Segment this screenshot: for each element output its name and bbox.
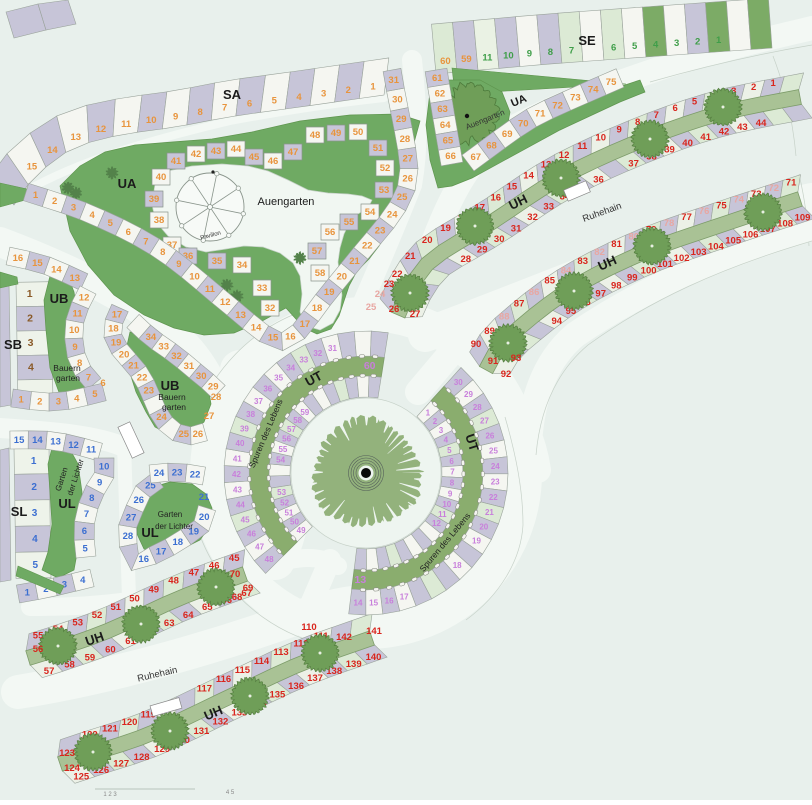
svg-text:20: 20 [422, 235, 433, 246]
svg-text:21: 21 [128, 361, 139, 372]
svg-text:15: 15 [14, 435, 25, 446]
svg-text:SA: SA [223, 87, 242, 102]
svg-text:98: 98 [611, 280, 622, 291]
svg-text:7: 7 [143, 237, 148, 248]
svg-text:47: 47 [288, 147, 299, 158]
svg-text:45: 45 [229, 553, 240, 564]
svg-text:1 2 3: 1 2 3 [103, 792, 117, 798]
svg-text:2: 2 [751, 82, 756, 93]
svg-text:65: 65 [443, 136, 454, 147]
svg-text:4: 4 [32, 534, 38, 545]
svg-text:24: 24 [491, 462, 500, 471]
svg-text:50: 50 [290, 518, 299, 527]
svg-text:37: 37 [254, 397, 263, 406]
svg-text:6: 6 [82, 526, 87, 537]
svg-text:57: 57 [287, 425, 296, 434]
svg-text:11: 11 [482, 52, 493, 63]
svg-text:123: 123 [59, 748, 75, 759]
svg-text:48: 48 [310, 130, 321, 141]
svg-text:2: 2 [346, 85, 351, 96]
svg-text:23: 23 [491, 478, 500, 487]
svg-text:25: 25 [397, 192, 408, 203]
svg-text:59: 59 [461, 54, 472, 65]
svg-text:45: 45 [241, 515, 250, 524]
svg-text:10: 10 [146, 115, 157, 126]
svg-text:25: 25 [179, 429, 190, 440]
svg-text:29: 29 [208, 382, 219, 393]
svg-text:12: 12 [68, 440, 79, 451]
svg-text:64: 64 [440, 120, 451, 131]
svg-text:6: 6 [673, 103, 678, 114]
svg-text:33: 33 [257, 283, 268, 294]
svg-text:75: 75 [716, 200, 727, 211]
svg-text:57: 57 [312, 246, 323, 257]
svg-text:6: 6 [611, 42, 616, 53]
svg-text:23: 23 [144, 386, 155, 397]
svg-text:1: 1 [771, 78, 777, 89]
svg-text:29: 29 [396, 114, 407, 125]
svg-text:26: 26 [193, 429, 204, 440]
svg-text:9: 9 [173, 112, 178, 123]
svg-text:83: 83 [577, 256, 588, 267]
svg-text:97: 97 [595, 288, 606, 299]
svg-text:11: 11 [577, 141, 588, 152]
svg-text:2: 2 [37, 396, 42, 407]
svg-text:34: 34 [146, 332, 157, 343]
svg-text:91: 91 [488, 356, 499, 367]
svg-text:14: 14 [251, 323, 262, 334]
svg-text:23: 23 [375, 225, 386, 236]
svg-text:48: 48 [168, 576, 179, 587]
svg-text:72: 72 [768, 183, 779, 194]
svg-text:4: 4 [74, 394, 80, 405]
svg-text:20: 20 [479, 523, 488, 532]
svg-text:30: 30 [494, 234, 505, 245]
svg-text:28: 28 [211, 392, 222, 403]
svg-text:27: 27 [126, 513, 137, 524]
svg-text:58: 58 [315, 268, 326, 279]
svg-text:24: 24 [154, 468, 165, 479]
svg-text:35: 35 [212, 256, 223, 267]
svg-text:71: 71 [786, 177, 797, 188]
svg-text:29: 29 [477, 245, 488, 256]
svg-text:106: 106 [743, 230, 759, 241]
svg-text:40: 40 [236, 439, 245, 448]
svg-text:3: 3 [674, 38, 679, 49]
svg-text:UB: UB [50, 291, 69, 306]
svg-text:UB: UB [161, 378, 180, 393]
svg-text:30: 30 [196, 371, 207, 382]
svg-text:18: 18 [108, 324, 119, 335]
svg-text:99: 99 [627, 273, 638, 284]
svg-text:14: 14 [51, 265, 62, 276]
svg-text:1: 1 [25, 587, 31, 598]
svg-text:116: 116 [216, 674, 231, 685]
svg-text:16: 16 [491, 192, 502, 203]
svg-text:56: 56 [33, 644, 44, 655]
svg-text:8: 8 [89, 493, 94, 504]
svg-text:5: 5 [82, 543, 88, 554]
svg-text:38: 38 [154, 215, 165, 226]
svg-text:13: 13 [70, 273, 81, 284]
svg-text:10: 10 [595, 133, 606, 144]
svg-text:SB: SB [4, 337, 22, 352]
svg-text:51: 51 [373, 143, 384, 154]
svg-text:14: 14 [47, 145, 58, 156]
svg-text:5: 5 [33, 560, 39, 571]
svg-text:32: 32 [265, 303, 276, 314]
svg-text:45: 45 [249, 152, 260, 163]
svg-text:19: 19 [472, 537, 481, 546]
svg-text:81: 81 [611, 239, 622, 250]
svg-text:11: 11 [86, 445, 97, 456]
svg-text:19: 19 [111, 337, 122, 348]
svg-text:43: 43 [211, 146, 222, 157]
svg-text:15: 15 [268, 333, 279, 344]
svg-text:6: 6 [100, 378, 105, 389]
svg-text:20: 20 [119, 350, 130, 361]
svg-text:1: 1 [27, 288, 33, 300]
svg-text:24: 24 [375, 289, 386, 300]
svg-text:15: 15 [507, 181, 518, 192]
svg-text:28: 28 [400, 134, 411, 145]
svg-text:10: 10 [69, 325, 80, 336]
svg-text:102: 102 [674, 253, 690, 264]
svg-text:48: 48 [265, 555, 274, 564]
svg-text:142: 142 [336, 632, 352, 643]
svg-text:11: 11 [438, 510, 447, 519]
svg-text:60: 60 [105, 645, 116, 656]
svg-text:27: 27 [480, 417, 489, 426]
svg-text:140: 140 [366, 652, 382, 663]
svg-text:62: 62 [435, 89, 446, 100]
svg-text:2: 2 [433, 417, 438, 426]
svg-text:39: 39 [149, 194, 160, 205]
svg-text:10: 10 [442, 500, 451, 509]
svg-text:109: 109 [795, 213, 811, 224]
svg-text:139: 139 [346, 659, 362, 670]
svg-text:58: 58 [293, 416, 302, 425]
svg-text:93: 93 [511, 353, 522, 364]
svg-text:73: 73 [570, 92, 581, 103]
svg-text:9: 9 [616, 125, 621, 136]
svg-text:16: 16 [13, 253, 24, 264]
svg-text:13: 13 [355, 574, 367, 586]
svg-text:34: 34 [237, 260, 248, 271]
svg-text:18: 18 [312, 303, 323, 314]
svg-text:47: 47 [189, 568, 200, 579]
svg-text:108: 108 [777, 218, 793, 229]
svg-text:8: 8 [197, 107, 202, 118]
svg-text:12: 12 [220, 297, 231, 308]
svg-text:5: 5 [92, 389, 98, 400]
svg-text:34: 34 [286, 364, 295, 373]
svg-text:31: 31 [328, 344, 337, 353]
svg-text:1: 1 [716, 35, 722, 46]
svg-text:52: 52 [280, 498, 289, 507]
svg-text:50: 50 [129, 593, 140, 604]
svg-text:4 5: 4 5 [226, 790, 235, 796]
svg-text:UL: UL [58, 496, 75, 511]
svg-text:27: 27 [403, 154, 414, 165]
svg-text:64: 64 [183, 610, 194, 621]
svg-text:54: 54 [276, 456, 285, 465]
svg-text:16: 16 [138, 554, 149, 565]
svg-text:69: 69 [243, 583, 254, 594]
svg-text:4: 4 [80, 575, 86, 586]
svg-text:19: 19 [324, 287, 335, 298]
svg-text:43: 43 [233, 485, 242, 494]
svg-text:7: 7 [86, 373, 91, 384]
svg-text:35: 35 [274, 373, 283, 382]
svg-text:15: 15 [27, 162, 38, 173]
svg-text:27: 27 [410, 309, 421, 320]
svg-text:38: 38 [246, 410, 255, 419]
svg-text:11: 11 [121, 119, 132, 130]
svg-text:7: 7 [450, 468, 455, 477]
svg-text:3: 3 [32, 508, 38, 519]
svg-text:2: 2 [52, 196, 57, 207]
svg-text:1: 1 [33, 190, 39, 201]
svg-text:63: 63 [164, 618, 175, 629]
svg-text:43: 43 [737, 122, 748, 133]
svg-text:9: 9 [176, 259, 181, 270]
svg-text:3: 3 [28, 337, 34, 349]
svg-text:16: 16 [385, 596, 394, 605]
svg-text:68: 68 [232, 592, 243, 603]
svg-text:15: 15 [32, 258, 43, 269]
svg-text:16: 16 [285, 332, 296, 343]
svg-text:92: 92 [501, 369, 512, 380]
svg-text:41: 41 [171, 156, 182, 167]
svg-text:garten: garten [162, 402, 186, 412]
svg-text:der Lichter: der Lichter [155, 522, 193, 531]
svg-text:71: 71 [535, 109, 546, 120]
svg-text:70: 70 [518, 118, 529, 129]
svg-text:22: 22 [190, 470, 201, 481]
svg-text:55: 55 [278, 445, 287, 454]
svg-text:53: 53 [72, 617, 83, 628]
svg-text:13: 13 [50, 437, 61, 448]
svg-text:69: 69 [502, 129, 513, 140]
svg-text:32: 32 [527, 212, 538, 223]
svg-text:13: 13 [71, 132, 82, 143]
svg-text:74: 74 [734, 195, 745, 206]
svg-text:6: 6 [126, 227, 131, 238]
svg-text:72: 72 [552, 100, 563, 111]
svg-text:44: 44 [756, 118, 767, 129]
svg-text:2: 2 [695, 36, 700, 47]
svg-text:25: 25 [366, 302, 377, 313]
svg-text:4: 4 [653, 39, 659, 50]
svg-text:7: 7 [84, 509, 89, 520]
svg-text:9: 9 [97, 478, 102, 489]
svg-text:9: 9 [448, 489, 453, 498]
svg-text:60: 60 [364, 360, 376, 372]
svg-text:23: 23 [172, 468, 183, 479]
svg-text:124: 124 [64, 763, 81, 774]
svg-text:5: 5 [108, 218, 114, 229]
svg-text:87: 87 [514, 299, 525, 310]
svg-text:4: 4 [89, 210, 95, 221]
svg-text:56: 56 [325, 227, 336, 238]
svg-text:113: 113 [273, 647, 288, 658]
svg-text:11: 11 [72, 308, 83, 319]
svg-text:120: 120 [122, 717, 138, 728]
svg-text:14: 14 [523, 170, 534, 181]
svg-text:41: 41 [233, 455, 242, 464]
svg-text:67: 67 [471, 152, 482, 163]
svg-text:94: 94 [552, 316, 563, 327]
svg-text:21: 21 [405, 251, 416, 262]
svg-text:60: 60 [440, 56, 451, 67]
svg-text:21: 21 [199, 492, 210, 503]
svg-text:42: 42 [191, 149, 202, 160]
svg-text:20: 20 [337, 272, 348, 283]
svg-text:63: 63 [437, 104, 448, 115]
svg-text:115: 115 [235, 665, 251, 676]
svg-text:3: 3 [56, 396, 61, 407]
svg-text:37: 37 [628, 159, 639, 170]
svg-text:54: 54 [365, 207, 376, 218]
svg-text:21: 21 [349, 256, 360, 267]
svg-text:SE: SE [578, 33, 596, 48]
svg-text:21: 21 [485, 508, 494, 517]
svg-text:6: 6 [247, 99, 252, 110]
svg-text:22: 22 [362, 241, 373, 252]
svg-text:68: 68 [486, 141, 497, 152]
svg-text:75: 75 [606, 77, 617, 88]
svg-text:26: 26 [402, 173, 413, 184]
svg-text:Auengarten: Auengarten [258, 196, 315, 208]
svg-text:12: 12 [79, 293, 90, 304]
svg-text:53: 53 [277, 488, 286, 497]
svg-text:UA: UA [118, 176, 137, 191]
svg-text:49: 49 [331, 128, 342, 139]
svg-text:garten: garten [56, 373, 80, 383]
svg-text:UL: UL [141, 525, 158, 540]
svg-text:61: 61 [432, 73, 443, 84]
svg-text:1: 1 [426, 409, 431, 418]
svg-text:66: 66 [445, 151, 456, 162]
svg-text:104: 104 [708, 241, 725, 252]
svg-text:22: 22 [137, 373, 148, 384]
svg-text:114: 114 [254, 656, 270, 667]
svg-text:19: 19 [440, 223, 451, 234]
svg-text:100: 100 [641, 266, 657, 277]
svg-text:3: 3 [71, 203, 76, 214]
svg-text:42: 42 [719, 127, 730, 138]
svg-text:26: 26 [485, 431, 494, 440]
svg-text:55: 55 [344, 217, 355, 228]
svg-text:20: 20 [199, 512, 210, 523]
svg-text:9: 9 [527, 49, 532, 60]
svg-text:90: 90 [471, 339, 482, 350]
svg-text:31: 31 [388, 75, 399, 86]
svg-text:41: 41 [700, 132, 711, 143]
svg-text:36: 36 [263, 385, 272, 394]
svg-text:40: 40 [156, 172, 167, 183]
svg-text:1: 1 [19, 394, 25, 405]
svg-text:SL: SL [11, 504, 28, 519]
svg-text:33: 33 [158, 341, 169, 352]
svg-text:33: 33 [299, 355, 308, 364]
svg-text:28: 28 [123, 531, 134, 542]
svg-text:2: 2 [27, 313, 33, 325]
svg-text:18: 18 [453, 561, 462, 570]
svg-text:29: 29 [464, 390, 473, 399]
svg-text:3: 3 [439, 426, 444, 435]
svg-text:85: 85 [544, 276, 555, 287]
svg-text:28: 28 [461, 254, 472, 265]
svg-text:49: 49 [149, 584, 160, 595]
svg-text:4: 4 [296, 92, 302, 103]
svg-text:42: 42 [232, 470, 241, 479]
svg-text:36: 36 [593, 174, 604, 185]
svg-text:7: 7 [222, 103, 227, 114]
svg-text:7: 7 [654, 110, 659, 121]
svg-text:30: 30 [454, 378, 463, 387]
svg-text:70: 70 [230, 569, 241, 580]
svg-text:1: 1 [370, 81, 376, 92]
svg-text:103: 103 [691, 247, 707, 258]
svg-text:22: 22 [489, 493, 498, 502]
svg-text:76: 76 [699, 206, 710, 217]
svg-text:18: 18 [173, 537, 184, 548]
svg-text:10: 10 [189, 271, 200, 282]
svg-text:31: 31 [511, 223, 522, 234]
svg-text:50: 50 [353, 127, 364, 138]
svg-text:5: 5 [632, 41, 638, 52]
svg-text:15: 15 [369, 598, 378, 607]
svg-text:59: 59 [300, 408, 309, 417]
svg-text:57: 57 [44, 666, 55, 677]
svg-text:128: 128 [134, 752, 150, 763]
svg-text:77: 77 [681, 212, 692, 223]
svg-text:8: 8 [450, 479, 455, 488]
svg-text:17: 17 [112, 310, 123, 321]
svg-text:4: 4 [444, 436, 449, 445]
svg-text:127: 127 [113, 759, 129, 770]
svg-text:Bauern: Bauern [158, 392, 186, 402]
svg-text:56: 56 [282, 435, 291, 444]
svg-text:53: 53 [379, 185, 390, 196]
svg-text:51: 51 [284, 508, 293, 517]
svg-text:1: 1 [31, 456, 37, 467]
svg-text:52: 52 [380, 163, 391, 174]
svg-text:78: 78 [664, 218, 675, 229]
svg-text:88: 88 [499, 311, 510, 322]
svg-text:46: 46 [247, 530, 256, 539]
svg-text:Bauern: Bauern [53, 363, 81, 373]
svg-text:32: 32 [313, 349, 322, 358]
svg-text:26: 26 [389, 304, 400, 315]
svg-text:136: 136 [288, 681, 304, 692]
svg-text:135: 135 [269, 690, 286, 701]
svg-text:14: 14 [354, 598, 363, 607]
svg-text:24: 24 [387, 210, 398, 221]
svg-text:110: 110 [301, 622, 316, 633]
svg-text:10: 10 [503, 51, 514, 62]
svg-text:Garten: Garten [158, 510, 182, 519]
svg-text:8: 8 [548, 47, 553, 58]
svg-text:52: 52 [92, 610, 103, 621]
svg-text:14: 14 [32, 435, 43, 446]
svg-text:121: 121 [102, 723, 119, 734]
svg-text:44: 44 [236, 501, 245, 510]
svg-text:5: 5 [447, 446, 452, 455]
svg-text:26: 26 [134, 495, 145, 506]
